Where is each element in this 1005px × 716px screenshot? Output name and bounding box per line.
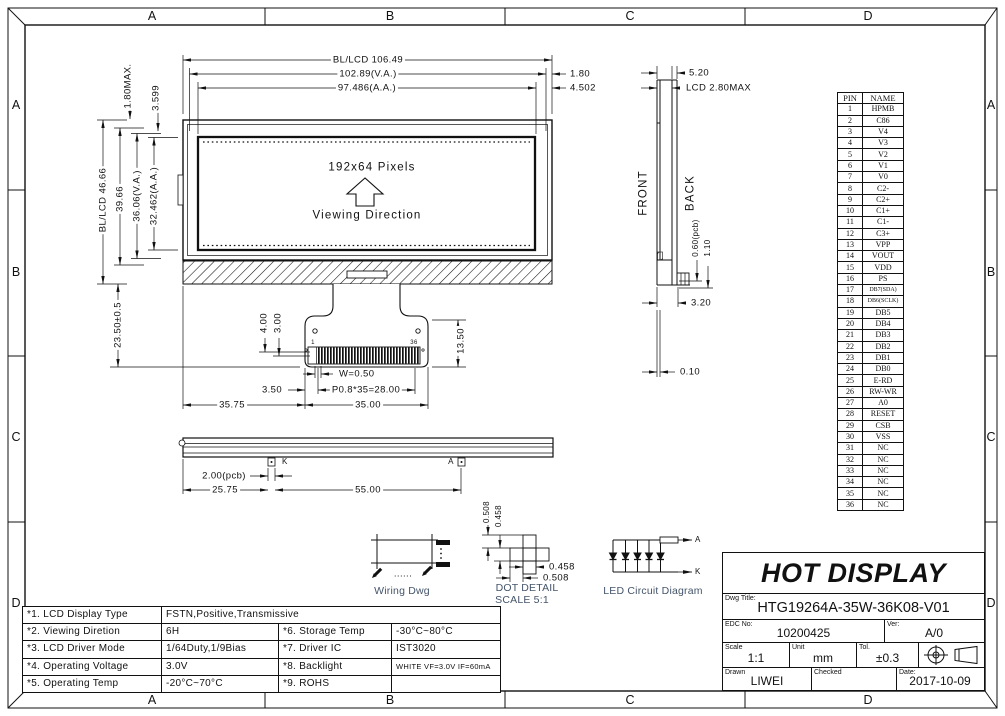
spec-cell: *5. Operating Temp [23,675,162,692]
dot-detail-caption: DOT DETAIL [494,583,561,594]
pin-row: 2C86 [838,115,904,126]
grid-letter-left-c: C [11,430,20,444]
grid-letter-bottom-b: B [386,693,394,707]
pin-row: 23DB1 [838,352,904,363]
spec-cell: -30°C~80°C [392,624,501,641]
grid-letter-top-c: C [625,9,634,23]
dim-dot-v2: 0.458 [495,503,503,529]
pin-number: 35 [838,488,863,499]
spec-cell: *7. Driver IC [279,641,392,658]
pin-row: 15VDD [838,262,904,273]
pin-row: 1HPMB [838,104,904,115]
pin-number: 28 [838,409,863,420]
pin-table: PIN NAME 1HPMB2C863V44V35V26V17V08C2-9C2… [837,92,904,511]
pin-row: 11C1- [838,217,904,228]
projection-symbol-cell [918,643,983,667]
spec-cell: *8. Backlight [279,658,392,675]
dot-detail [482,522,549,582]
tol-label: Tol. [859,644,870,651]
dim-tail-len: 23.50±0.5 [113,300,123,350]
grid-letter-right-a: A [987,98,995,112]
spec-row: *2. Viewing Diretion 6H *6. Storage Temp… [23,624,501,641]
led-circuit [610,537,693,572]
spec-cell: *3. LCD Driver Mode [23,641,162,658]
spec-cell: *4. Operating Voltage [23,658,162,675]
pin-row: 26RW-WR [838,386,904,397]
pixels-label: 192x64 Pixels [328,162,415,174]
pin-number: 11 [838,217,863,228]
grid-letter-right-d: D [986,596,995,610]
pin-row: 10C1+ [838,205,904,216]
wiring-dots: ...... [394,569,412,579]
dim-top-gap2: 3.599 [151,83,161,113]
pin-name: NC [863,499,904,510]
pin-number: 15 [838,262,863,273]
dot-detail-scale: SCALE 5:1 [493,595,551,606]
checked-cell: Checked [811,668,896,690]
spec-cell: FSTN,Positive,Transmissive [162,607,501,624]
pin-number: 9 [838,194,863,205]
grid-letter-left-a: A [12,98,20,112]
unit-value: mm [790,651,856,665]
spec-cell: -20°C~70°C [162,675,279,692]
pin-number: 17 [838,285,863,296]
pin-name: VSS [863,431,904,442]
dim-pad1: 4.00 [259,311,269,335]
pin-row: 29CSB [838,420,904,431]
dim-pad2: 3.00 [273,311,283,335]
pin-row: 36NC [838,499,904,510]
grid-letter-right-c: C [986,430,995,444]
dim-height-pcb: 39.66 [115,184,125,214]
dim-pad-w: W=0.50 [337,369,376,379]
drawn-value: LIWEI [723,674,811,688]
dim-side-lcd: LCD 2.80MAX [684,83,753,93]
ver-cell: Ver: A/0 [884,620,983,642]
spec-cell: 1/64Duty,1/9Bias [162,641,279,658]
pin-name: VOUT [863,251,904,262]
pin-name: V2 [863,149,904,160]
pin-name: HPMB [863,104,904,115]
pin-name: DB5 [863,307,904,318]
company-name: HOT DISPLAY [761,558,946,589]
pin-number: 10 [838,205,863,216]
pin-row: 30VSS [838,431,904,442]
front-view [178,120,552,367]
pin-name: C2+ [863,194,904,205]
pin-name: V3 [863,138,904,149]
dim-width-aa: 97.486(A.A.) [336,83,398,93]
pin-name: DB1 [863,352,904,363]
pin-name: NC [863,443,904,454]
pin-name: NC [863,477,904,488]
pin-first-label: 1 [311,340,315,346]
spec-cell: *6. Storage Temp [279,624,392,641]
pin-name: DB3 [863,330,904,341]
spec-row: *1. LCD Display Type FSTN,Positive,Trans… [23,607,501,624]
grid-letter-left-d: D [11,596,20,610]
pin-number: 6 [838,160,863,171]
pin-name: A0 [863,398,904,409]
pin-number: 33 [838,465,863,476]
spec-cell: IST3020 [392,641,501,658]
spec-cell [392,675,501,692]
pin-row: 28RESET [838,409,904,420]
pin-number: 2 [838,115,863,126]
spec-cell: *2. Viewing Diretion [23,624,162,641]
pin-row: 6V1 [838,160,904,171]
dim-tab-w: 35.00 [353,400,383,410]
led-cathode-label: K [695,568,701,576]
pin-row: 8C2- [838,183,904,194]
dwg-title-row: Dwg Title: HTG19264A-35W-36K08-V01 [723,593,984,619]
led-anode-label: A [695,536,701,544]
k-terminal-label: K [282,458,288,466]
pin-number: 1 [838,104,863,115]
dim-right-gap1: 1.80 [568,69,592,79]
title-block: HOT DISPLAY Dwg Title: HTG19264A-35W-36K… [722,552,985,691]
dim-height-bl: BL/LCD 46.66 [98,166,108,234]
pin-name: VPP [863,239,904,250]
pin-number: 13 [838,239,863,250]
grid-letter-top-b: B [386,9,394,23]
spec-row: *4. Operating Voltage 3.0V *8. Backlight… [23,658,501,675]
company-row: HOT DISPLAY [723,553,984,593]
scale-row: Scale 1:1 Unit mm Tol. ±0.3 [723,642,984,667]
pin-row: 35NC [838,488,904,499]
pin-row: 13VPP [838,239,904,250]
dim-pad-off: 3.50 [260,385,284,395]
pin-row: 7V0 [838,172,904,183]
spec-row: *5. Operating Temp -20°C~70°C *9. ROHS [23,675,501,692]
front-label: FRONT [638,170,650,216]
pin-row: 31NC [838,443,904,454]
pin-row: 21DB3 [838,330,904,341]
dim-dot-h1: 0.458 [547,562,577,572]
pin-table-header: PIN NAME [838,93,904,104]
pin-name: VDD [863,262,904,273]
unit-cell: Unit mm [789,643,856,667]
pin-name: V4 [863,126,904,137]
pin-name: DB2 [863,341,904,352]
spec-row: *3. LCD Driver Mode 1/64Duty,1/9Bias *7.… [23,641,501,658]
pin-row: 4V3 [838,138,904,149]
dim-width-bl: BL/LCD 106.49 [331,55,405,65]
date-value: 2017-10-09 [897,674,983,688]
dim-bar-2575: 25.75 [210,485,240,495]
pin-number: 26 [838,386,863,397]
pin-name: PS [863,273,904,284]
dim-tail-depth: 13.50 [456,326,466,356]
pin-row: 12C3+ [838,228,904,239]
dim-dot-v1: 0.508 [483,499,491,525]
pin-number: 3 [838,126,863,137]
scale-label: Scale [725,644,743,651]
dim-side-320: 3.20 [689,298,713,308]
pin-col-header: PIN [838,93,863,104]
pin-name: DB7(SDA) [863,285,904,296]
pin-row: 33NC [838,465,904,476]
pin-number: 7 [838,172,863,183]
pin-name: CSB [863,420,904,431]
dim-tab-off: 35.75 [217,400,247,410]
pin-number: 16 [838,273,863,284]
pin-row: 14VOUT [838,251,904,262]
pin-row: 27A0 [838,398,904,409]
pin-name: C1- [863,217,904,228]
dim-pitch: P0.8*35=28.00 [330,385,402,395]
pin-number: 23 [838,352,863,363]
third-angle-projection-icon [919,643,984,667]
unit-label: Unit [792,644,804,651]
spec-cell: *1. LCD Display Type [23,607,162,624]
scale-value: 1:1 [723,651,789,665]
pin-number: 29 [838,420,863,431]
dim-right-gap2: 4.502 [568,83,598,93]
pin-row: 34NC [838,477,904,488]
grid-letter-left-b: B [12,265,20,279]
tol-value: ±0.3 [857,651,918,665]
checked-label: Checked [814,669,842,676]
name-col-header: NAME [863,93,904,104]
pin-number: 25 [838,375,863,386]
pen-icon [371,567,383,579]
grid-letter-bottom-d: D [863,693,872,707]
pin-row: 16PS [838,273,904,284]
bar-view [179,438,553,466]
led-circuit-caption: LED Circuit Diagram [601,586,705,597]
date-cell: Date: 2017-10-09 [896,668,983,690]
pin-row: 25E-RD [838,375,904,386]
pin-row: 18DB6(SCLK) [838,296,904,307]
dim-side-pcb: 0.60(pcb) [692,217,700,258]
pin-row: 20DB4 [838,318,904,329]
pin-number: 5 [838,149,863,160]
dim-height-aa: 32.462(A.A.) [149,165,159,227]
pin-row: 32NC [838,454,904,465]
pin-name: C3+ [863,228,904,239]
edc-cell: EDC No: 10200425 [723,620,884,642]
grid-letter-top-d: D [863,9,872,23]
pen-icon [421,565,433,577]
dim-top-gap1: 1.80MAX. [123,62,133,111]
pin-number: 30 [838,431,863,442]
tol-cell: Tol. ±0.3 [856,643,918,667]
dwg-title-value: HTG19264A-35W-36K08-V01 [723,600,984,616]
pin-name: RW-WR [863,386,904,397]
pin-number: 4 [838,138,863,149]
dim-side-010: 0.10 [678,367,702,377]
pin-name: DB6(SCLK) [863,296,904,307]
dim-side-total: 5.20 [687,68,711,78]
back-label: BACK [685,175,697,211]
pin-name: C1+ [863,205,904,216]
led-symbols [610,540,665,572]
pin-name: NC [863,454,904,465]
pin-last-label: 36 [410,340,417,346]
pin-name: RESET [863,409,904,420]
pin-row: 9C2+ [838,194,904,205]
spec-cell: WHITE VF=3.0V IF=60mA [392,658,501,675]
spec-cell: 6H [162,624,279,641]
pin-row: 24DB0 [838,364,904,375]
drawn-cell: Drawn LIWEI [723,668,811,690]
pin-name: NC [863,488,904,499]
signature-row: Drawn LIWEI Checked Date: 2017-10-09 [723,667,984,690]
wiring-caption: Wiring Dwg [372,586,432,597]
pin-row: 3V4 [838,126,904,137]
viewing-direction-label: Viewing Direction [312,210,421,222]
pin-name: DB4 [863,318,904,329]
pin-row: 5V2 [838,149,904,160]
pin-name: C2- [863,183,904,194]
grid-letter-bottom-c: C [625,693,634,707]
pin-name: C86 [863,115,904,126]
pin-name: E-RD [863,375,904,386]
edc-row: EDC No: 10200425 Ver: A/0 [723,619,984,642]
pin-name: V1 [863,160,904,171]
pin-number: 27 [838,398,863,409]
spec-cell: 3.0V [162,658,279,675]
pin-row: 22DB2 [838,341,904,352]
pin-number: 12 [838,228,863,239]
pin-number: 31 [838,443,863,454]
dim-bar-5500: 55.00 [353,485,383,495]
pin-number: 18 [838,296,863,307]
pin-number: 19 [838,307,863,318]
pin-number: 8 [838,183,863,194]
pin-number: 21 [838,330,863,341]
grid-letter-top-a: A [148,9,156,23]
grid-letter-right-b: B [987,265,995,279]
spec-table: *1. LCD Display Type FSTN,Positive,Trans… [22,606,501,693]
pin-name: NC [863,465,904,476]
drawing-sheet: A B C D A B C D A B C D A B C D BL/LCD 1… [0,0,1005,716]
pin-number: 22 [838,341,863,352]
pin-number: 34 [838,477,863,488]
pin-name: V0 [863,172,904,183]
dim-bar-pcb2: 2.00(pcb) [200,471,248,481]
pin-number: 36 [838,499,863,510]
pin-table-body: 1HPMB2C863V44V35V26V17V08C2-9C2+10C1+11C… [838,104,904,511]
edc-value: 10200425 [723,626,884,640]
pin-number: 32 [838,454,863,465]
grid-letter-bottom-a: A [148,693,156,707]
a-terminal-label: A [448,458,454,466]
pin-row: 19DB5 [838,307,904,318]
dim-side-110: 1.10 [704,237,712,258]
ver-value: A/0 [885,626,983,640]
pin-number: 24 [838,364,863,375]
pin-number: 14 [838,251,863,262]
spec-cell: *9. ROHS [279,675,392,692]
dim-width-va: 102.89(V.A.) [337,69,398,79]
pin-row: 17DB7(SDA) [838,285,904,296]
pin-name: DB0 [863,364,904,375]
scale-cell: Scale 1:1 [723,643,789,667]
pin-number: 20 [838,318,863,329]
dim-height-va: 36.06(V.A.) [132,168,142,224]
